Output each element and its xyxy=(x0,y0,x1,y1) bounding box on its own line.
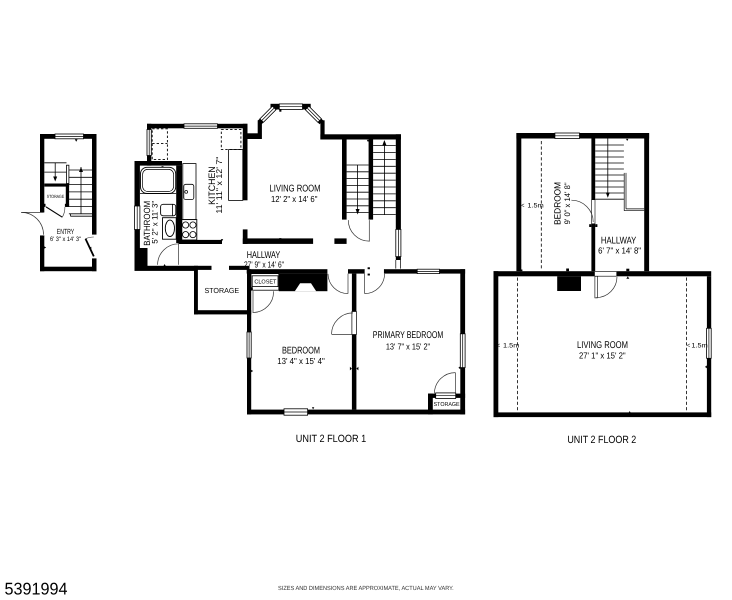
svg-text:<: < xyxy=(687,342,690,349)
svg-text:11' 11" x 12' 7": 11' 11" x 12' 7" xyxy=(214,157,224,214)
svg-text:CLOSET: CLOSET xyxy=(254,279,276,286)
svg-text:1.5m: 1.5m xyxy=(691,342,708,349)
svg-text:SIZES AND DIMENSIONS ARE APPRO: SIZES AND DIMENSIONS ARE APPROXIMATE, AC… xyxy=(278,585,454,592)
svg-text:5' 2" x 11' 3": 5' 2" x 11' 3" xyxy=(151,201,160,244)
svg-text:UNIT 2 FLOOR 1: UNIT 2 FLOOR 1 xyxy=(296,433,367,445)
svg-text:STORAGE: STORAGE xyxy=(204,286,239,295)
svg-text:13' 4" x 15' 4": 13' 4" x 15' 4" xyxy=(277,356,325,366)
svg-text:27' 9" x 14' 6": 27' 9" x 14' 6" xyxy=(244,259,284,269)
svg-text:13' 7" x 15' 2": 13' 7" x 15' 2" xyxy=(386,342,430,352)
svg-text:ENTRY: ENTRY xyxy=(57,227,75,236)
svg-text:9' 0" x 14' 8": 9' 0" x 14' 8" xyxy=(563,182,572,224)
svg-text:1.5m: 1.5m xyxy=(527,202,544,209)
svg-text:STORAGE: STORAGE xyxy=(434,402,460,408)
svg-text:27' 1" x 15' 2": 27' 1" x 15' 2" xyxy=(579,351,626,361)
svg-text:5391994: 5391994 xyxy=(5,579,68,598)
svg-text:12' 2" x 14' 6": 12' 2" x 14' 6" xyxy=(271,194,318,204)
svg-text:BEDROOM: BEDROOM xyxy=(552,182,562,225)
svg-text:LIVING ROOM: LIVING ROOM xyxy=(577,340,628,351)
svg-text:1.5m: 1.5m xyxy=(503,342,520,349)
svg-text:BEDROOM: BEDROOM xyxy=(282,345,320,356)
svg-text:PRIMARY BEDROOM: PRIMARY BEDROOM xyxy=(373,330,444,341)
svg-text:UNIT 2 FLOOR 2: UNIT 2 FLOOR 2 xyxy=(567,434,636,446)
svg-text:STORAGE: STORAGE xyxy=(47,194,65,199)
svg-text:6' 3" x 14' 3": 6' 3" x 14' 3" xyxy=(50,236,81,243)
svg-text:<: < xyxy=(521,202,524,209)
svg-text:<: < xyxy=(497,342,500,349)
svg-text:LIVING ROOM: LIVING ROOM xyxy=(270,183,321,194)
svg-text:6' 7" x 14' 8": 6' 7" x 14' 8" xyxy=(598,246,641,256)
